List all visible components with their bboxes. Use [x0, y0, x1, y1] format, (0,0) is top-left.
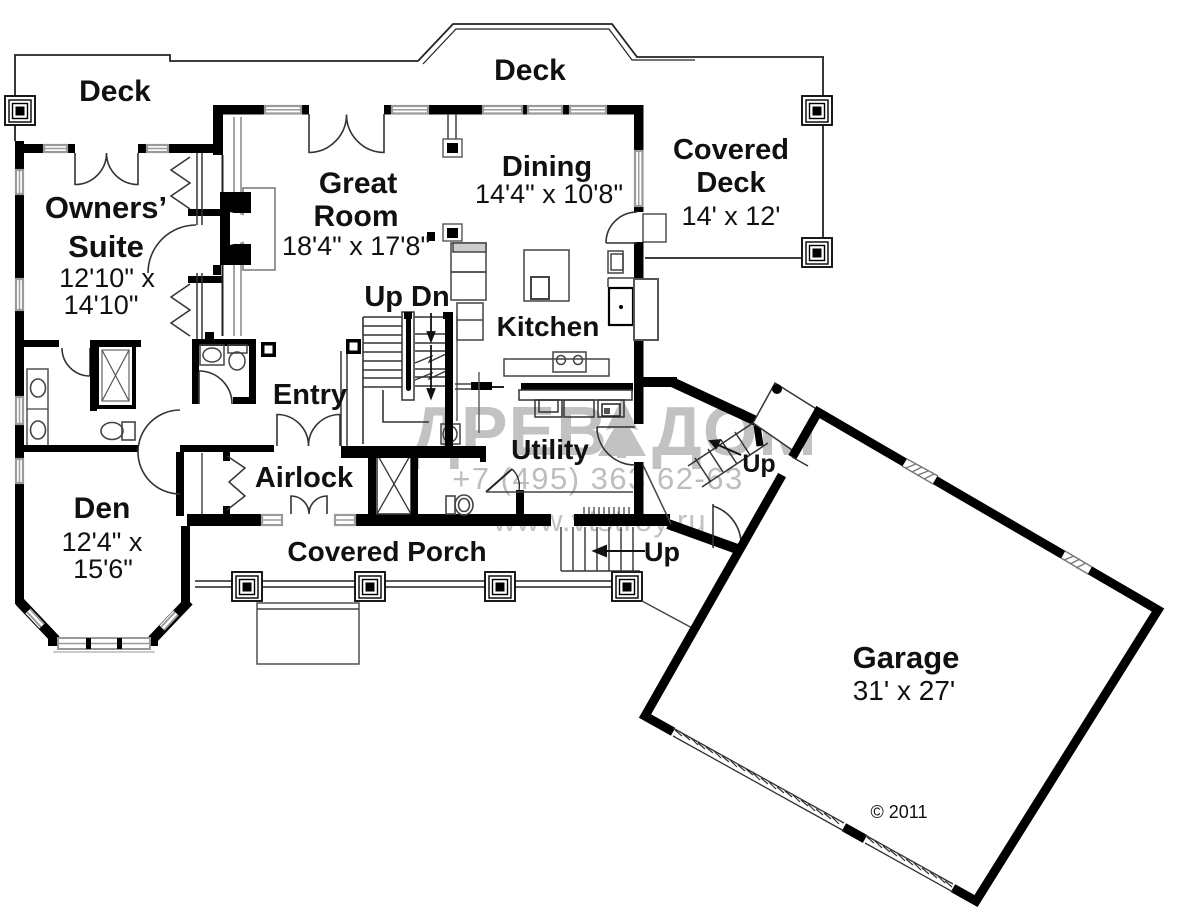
svg-text:Suite: Suite	[68, 229, 144, 264]
svg-text:Utility: Utility	[511, 434, 589, 465]
svg-text:14'10": 14'10"	[64, 290, 139, 320]
svg-text:Up: Up	[644, 537, 680, 567]
svg-text:15'6": 15'6"	[73, 554, 133, 584]
svg-text:Deck: Deck	[494, 54, 566, 87]
svg-text:Covered: Covered	[673, 134, 789, 166]
svg-text:Airlock: Airlock	[255, 462, 354, 494]
svg-text:© 2011: © 2011	[871, 802, 928, 822]
svg-text:18'4" x 17'8": 18'4" x 17'8"	[282, 231, 430, 261]
svg-text:Owners’: Owners’	[45, 190, 167, 225]
svg-text:Up Dn: Up Dn	[364, 281, 449, 313]
svg-text:Deck: Deck	[696, 167, 766, 199]
svg-text:Up: Up	[742, 450, 775, 478]
svg-text:Deck: Deck	[79, 75, 151, 108]
svg-text:Kitchen: Kitchen	[497, 311, 600, 342]
svg-text:Den: Den	[74, 492, 131, 525]
svg-text:12'4" x: 12'4" x	[62, 527, 143, 557]
svg-text:Garage: Garage	[853, 640, 960, 675]
svg-text:12'10" x: 12'10" x	[59, 263, 155, 293]
svg-text:Great: Great	[319, 167, 397, 200]
svg-text:Covered Porch: Covered Porch	[287, 536, 486, 567]
svg-text:31' x 27': 31' x 27'	[853, 675, 956, 706]
svg-text:14'4" x 10'8": 14'4" x 10'8"	[475, 179, 623, 209]
svg-text:Room: Room	[314, 200, 399, 233]
svg-text:Entry: Entry	[273, 379, 347, 411]
svg-text:14' x 12': 14' x 12'	[682, 201, 781, 231]
